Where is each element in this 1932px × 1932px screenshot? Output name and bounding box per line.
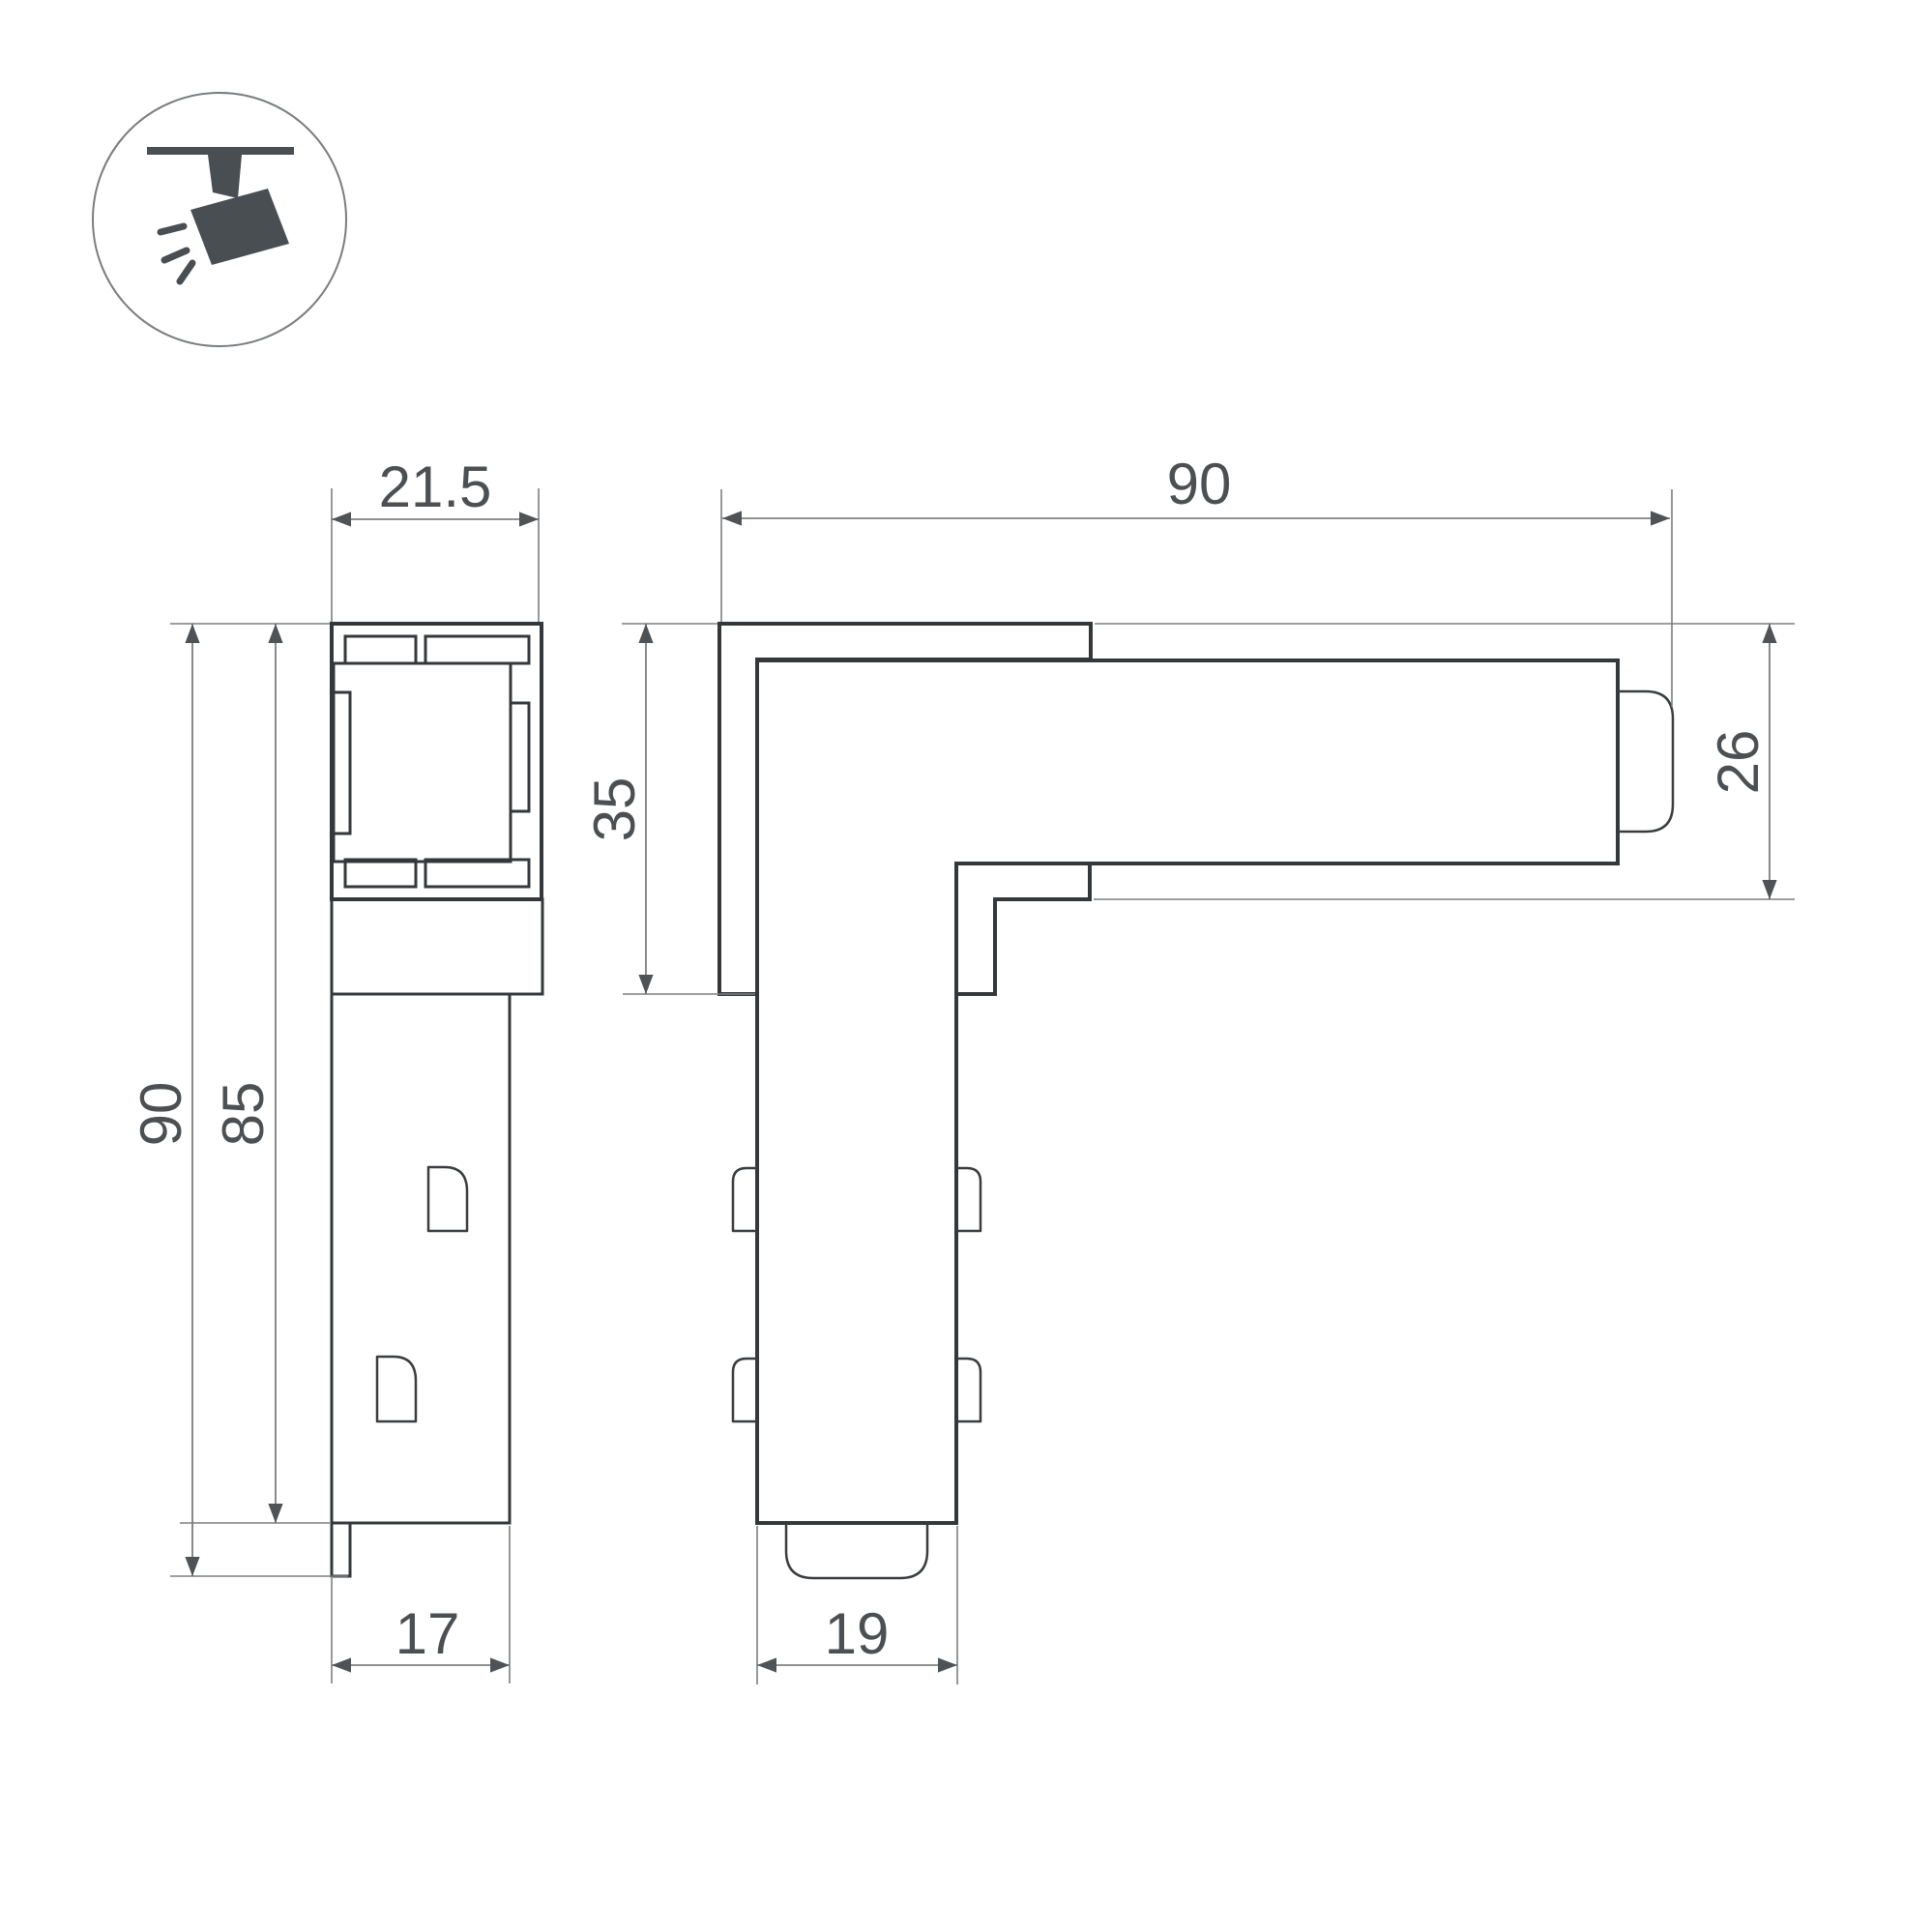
clip-lower-right	[957, 1359, 981, 1421]
front-view: 90 35 26 19	[582, 452, 1795, 1684]
dim-label-side-bottom-width: 17	[395, 1601, 460, 1666]
dimension-side-body-height: 85	[180, 624, 330, 1523]
mounting-collar	[332, 899, 542, 994]
top-slot-left	[345, 636, 416, 663]
clip-upper-right	[957, 1168, 981, 1231]
dimension-front-total-length: 90	[721, 452, 1672, 707]
bottom-slot-left	[345, 860, 416, 887]
end-cap-right	[1618, 691, 1673, 832]
outer-flange	[719, 624, 1091, 994]
track-spotlight-icon	[93, 93, 346, 346]
left-groove	[334, 692, 350, 834]
right-groove	[511, 703, 529, 811]
dim-label-side-top-width: 21.5	[379, 454, 492, 519]
dim-label-front-arm-width: 19	[825, 1601, 890, 1666]
clip-upper-left	[733, 1168, 757, 1231]
clip-lower	[377, 1357, 416, 1421]
dimension-side-bottom-width: 17	[332, 1526, 510, 1683]
dim-label-front-total-length: 90	[1167, 452, 1232, 516]
top-slot-right	[425, 636, 529, 663]
mount-stem	[208, 155, 242, 198]
connector-body	[332, 994, 510, 1523]
dim-label-front-corner-height: 35	[582, 777, 647, 842]
dimension-side-top-width: 21.5	[332, 454, 539, 622]
dim-label-side-body-height: 85	[211, 1082, 276, 1147]
corner-body	[757, 660, 1618, 1523]
end-cap-bottom	[786, 1523, 927, 1578]
dim-label-front-profile-height: 26	[1706, 730, 1771, 795]
bottom-tab	[332, 1523, 350, 1576]
drawing-canvas: 21.5 90 85 17	[0, 0, 1932, 1932]
dimension-front-profile-height: 26	[1094, 624, 1795, 899]
dimension-front-corner-height: 35	[582, 624, 755, 994]
center-cavity	[334, 663, 511, 862]
clip-upper	[428, 1167, 467, 1231]
technical-drawing: 21.5 90 85 17	[0, 0, 1932, 1932]
cross-section-head	[332, 624, 542, 899]
side-view: 21.5 90 85 17	[129, 454, 542, 1683]
ceiling-line	[147, 147, 294, 155]
clip-lower-left	[733, 1359, 757, 1421]
bottom-slot-right	[425, 860, 529, 887]
dim-label-side-total-height: 90	[129, 1082, 193, 1147]
inner-flange	[956, 864, 1090, 994]
